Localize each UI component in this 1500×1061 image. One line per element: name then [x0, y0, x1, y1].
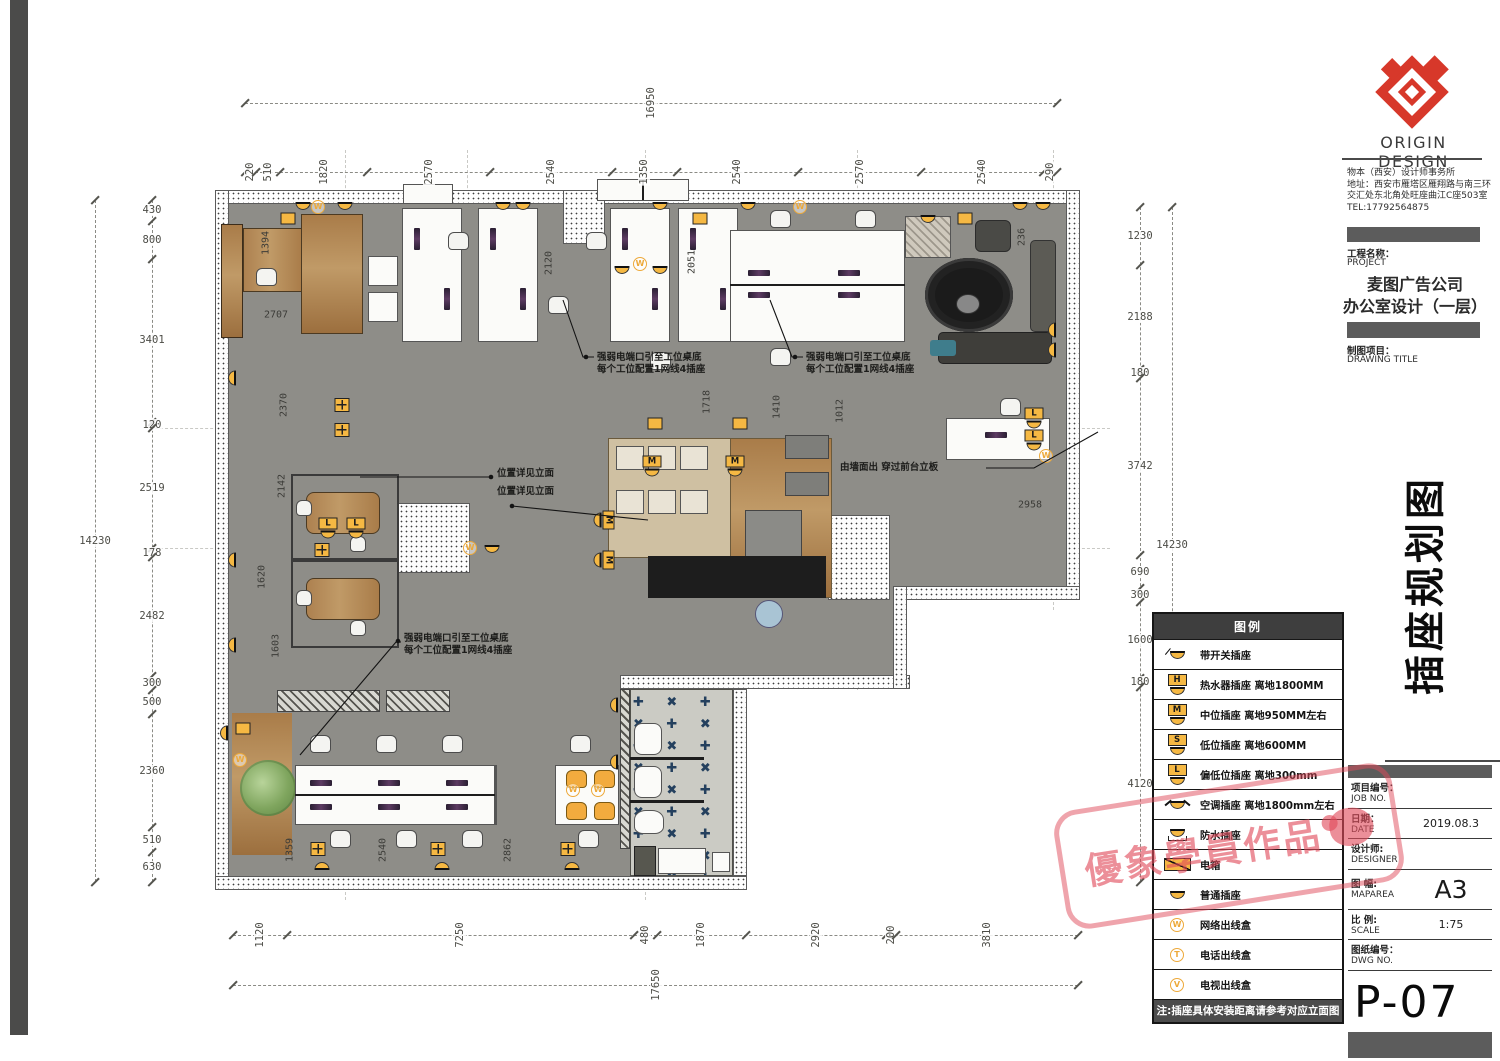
chair	[350, 620, 366, 636]
legend-icon-cell: M	[1154, 704, 1200, 725]
dimension-label: 1120	[254, 921, 266, 948]
interior-dimension-label: 1359	[285, 838, 296, 862]
socket-symbol	[296, 202, 311, 210]
dimension-label: 630	[142, 861, 163, 873]
network-outlet-icon: W	[1039, 449, 1053, 463]
socket-symbol	[335, 423, 350, 437]
socket-symbol: L	[347, 518, 366, 539]
dimension-label: 2540	[976, 158, 988, 185]
wall-restroom-right	[733, 689, 747, 876]
bar-counter-black	[648, 556, 826, 598]
column	[828, 515, 890, 600]
info-row-labels: 比 例:SCALE	[1351, 912, 1413, 938]
socket-icon	[1036, 202, 1051, 210]
info-row-value: 2019.08.3	[1413, 817, 1489, 830]
phone-outlet-icon: T	[1170, 948, 1184, 962]
socket-symbol	[315, 862, 330, 870]
company-info: 物本（西安）设计师事务所地址：西安市雁塔区雁翔路与南三环交汇处东北角处旺座曲江C…	[1347, 168, 1493, 214]
socket-letter-icon: S	[1168, 734, 1187, 755]
annotation-line: 强弱电端口引至工位桌底	[597, 352, 705, 364]
monitor	[652, 288, 658, 310]
junction-box-icon	[281, 213, 296, 226]
cabinet	[634, 846, 656, 876]
legend-icon-cell: S	[1154, 734, 1200, 755]
legend-row: 普通插座	[1154, 879, 1342, 909]
monitor	[690, 228, 696, 250]
legend-icon-cell: W	[1154, 918, 1200, 932]
legend-row: M中位插座 离地950MM左右	[1154, 699, 1342, 729]
legend-icon-cell: L	[1154, 764, 1200, 785]
chair	[296, 500, 312, 516]
interior-dimension-label: 236	[1017, 228, 1028, 246]
socket-symbol: M	[643, 456, 662, 477]
pantry-seat	[616, 446, 644, 470]
network-outlet-icon: W	[566, 783, 580, 797]
annotation-line: 每个工位配置1网线4插座	[806, 364, 914, 376]
legend-icon-cell	[1154, 651, 1200, 659]
chair	[330, 830, 351, 848]
section-bar	[1348, 1032, 1492, 1058]
floor-box-icon	[335, 423, 350, 437]
wall-hatched	[277, 690, 380, 712]
appliance	[785, 435, 829, 459]
socket-letter-icon: L	[1025, 430, 1044, 451]
pantry-seat	[616, 490, 644, 514]
wall-corridor-bottom	[620, 675, 910, 689]
annotation-line: 强弱电端口引至工位桌底	[806, 352, 914, 364]
socket-symbol: M	[594, 511, 615, 530]
chair	[548, 296, 569, 314]
socket-symbol: L	[319, 518, 338, 539]
desk-row	[495, 765, 497, 825]
socket-letter-icon: L	[1025, 408, 1044, 429]
printer	[368, 292, 398, 322]
socket-symbol	[561, 842, 576, 856]
chair	[770, 348, 791, 366]
legend-item-label: 电视出线盒	[1200, 977, 1251, 992]
legend-item-label: 电话出线盒	[1200, 947, 1251, 962]
interior-dimension-label: 1410	[772, 395, 783, 419]
legend-icon-cell	[1154, 801, 1200, 809]
socket-icon	[921, 215, 936, 223]
dimension-label: 480	[639, 925, 651, 946]
legend-item-label: 电箱	[1200, 857, 1220, 872]
legend-row: T电话出线盒	[1154, 939, 1342, 969]
legend-row: L偏低位插座 离地300mm	[1154, 759, 1342, 789]
desk-cluster	[610, 208, 670, 342]
sheet-title-text: 插座规划图	[1393, 475, 1451, 695]
junction-box-icon	[958, 213, 973, 226]
project-name-line1: 麦图广告公司	[1340, 274, 1490, 296]
socket-symbol: W	[591, 783, 605, 797]
floor-box-icon	[561, 842, 576, 856]
legend-item-label: 中位插座 离地950MM左右	[1200, 707, 1327, 722]
project-name-line2: 办公室设计（一层）	[1340, 296, 1490, 318]
info-row-value: A3	[1413, 875, 1489, 904]
socket-symbol	[610, 755, 618, 770]
page-edge-bar	[10, 0, 28, 1035]
monitor	[520, 288, 526, 310]
legend-item-label: 带开关插座	[1200, 647, 1251, 662]
dimension-label: 2570	[423, 158, 435, 185]
interior-dimension-label: 2370	[279, 393, 290, 417]
chair	[462, 830, 483, 848]
legend-row: 空调插座 离地1800mm左右	[1154, 789, 1342, 819]
info-label-en: MAPAREA	[1351, 890, 1413, 902]
sink-counter	[658, 848, 706, 874]
monitor	[378, 780, 400, 786]
socket-icon	[1013, 202, 1028, 210]
floor-box-icon	[315, 543, 330, 557]
sofa	[1030, 240, 1056, 332]
socket-symbol	[228, 371, 236, 386]
socket-symbol: L	[1025, 408, 1044, 429]
socket-symbol	[1048, 343, 1056, 358]
chair	[442, 735, 463, 753]
cabinet	[221, 224, 243, 338]
info-label-cn: 图纸编号：	[1351, 942, 1413, 956]
socket-letter-icon: M	[726, 456, 745, 477]
chair	[448, 232, 469, 250]
switched-socket-icon	[1170, 651, 1185, 659]
desk-divider	[730, 284, 905, 286]
restroom-partition	[630, 800, 704, 803]
dimension-label: 4120	[1126, 778, 1153, 790]
desk-divider	[295, 794, 495, 796]
project-name: 麦图广告公司 办公室设计（一层）	[1340, 274, 1490, 318]
annotation: 位置详见立面	[497, 486, 554, 498]
dimension-label: 500	[142, 696, 163, 708]
socket-symbol: M	[594, 551, 615, 570]
network-outlet-icon: W	[1170, 918, 1184, 932]
socket-symbol	[338, 202, 353, 210]
socket-icon	[496, 202, 511, 210]
company-info-line: TEL:17792564875	[1347, 203, 1493, 215]
info-label-en: JOB NO.	[1351, 794, 1413, 806]
junction-box-icon	[648, 418, 663, 431]
annotation-line: 每个工位配置1网线4插座	[404, 645, 512, 657]
socket-symbol	[228, 553, 236, 568]
drawing-info-block: 项目编号：JOB NO.日期：DATE2019.08.3设计师:DESIGNER…	[1348, 765, 1492, 1058]
socket-icon	[1048, 323, 1056, 338]
monitor	[444, 288, 450, 310]
network-outlet-icon: W	[311, 200, 325, 214]
door	[403, 184, 453, 204]
divider	[1385, 760, 1500, 762]
socket-icon	[315, 862, 330, 870]
legend-item-label: 防水插座	[1200, 827, 1241, 842]
interior-dimension-label: 2958	[1018, 500, 1042, 511]
legend-icon-cell	[1154, 891, 1200, 899]
socket-symbol	[311, 842, 326, 856]
socket-icon	[653, 202, 668, 210]
annotation: 由墙面出 穿过前台立板	[840, 462, 938, 474]
monitor	[720, 288, 726, 310]
annotation-line: 位置详见立面	[497, 486, 554, 498]
monitor	[446, 804, 468, 810]
info-row-labels: 图纸编号：DWG NO.	[1351, 942, 1413, 968]
chair-orange	[566, 802, 587, 820]
desk-cluster	[478, 208, 538, 342]
annotation: 强弱电端口引至工位桌底每个工位配置1网线4插座	[597, 352, 705, 375]
legend: 图例 带开关插座H热水器插座 离地1800MMM中位插座 离地950MM左右S低…	[1152, 612, 1344, 1024]
chair-orange	[594, 802, 615, 820]
wall-main-bottom	[893, 586, 1080, 600]
socket-symbol	[610, 698, 618, 713]
legend-item-label: 低位插座 离地600MM	[1200, 737, 1306, 752]
dimension-label: 510	[262, 162, 274, 183]
socket-symbol	[281, 213, 296, 226]
company-info-line: 物本（西安）设计师事务所	[1347, 168, 1493, 180]
info-row: 项目编号：JOB NO.	[1348, 778, 1492, 809]
floor-box-icon	[311, 842, 326, 856]
socket-symbol	[1036, 202, 1051, 210]
dimension-label: 2540	[545, 158, 557, 185]
dimension-label: 14230	[78, 535, 112, 547]
socket-symbol	[485, 545, 500, 553]
socket-symbol	[1013, 202, 1028, 210]
socket-symbol	[693, 213, 708, 226]
pantry-seat	[680, 446, 708, 470]
dimension-label: 2482	[138, 610, 165, 622]
monitor	[622, 228, 628, 250]
squat-toilet	[634, 723, 662, 755]
origin-design-logo	[1355, 35, 1468, 148]
chair	[310, 735, 331, 753]
socket-icon	[615, 266, 630, 274]
annotation-line: 位置详见立面	[497, 468, 554, 480]
legend-row: 防水插座	[1154, 819, 1342, 849]
socket-letter-icon: L	[347, 518, 366, 539]
dimension-label: 510	[142, 834, 163, 846]
info-row-labels: 项目编号：JOB NO.	[1351, 780, 1413, 806]
socket-icon	[435, 862, 450, 870]
toilet	[634, 810, 664, 834]
meeting-table	[306, 578, 380, 620]
socket-symbol	[431, 842, 446, 856]
brand-name: ORIGIN DESIGN	[1347, 133, 1480, 171]
legend-row: 带开关插座	[1154, 639, 1342, 669]
interior-dimension-label: 1012	[835, 399, 846, 423]
socket-symbol	[220, 726, 228, 741]
socket-symbol: W	[463, 541, 477, 555]
wall-right	[1066, 190, 1080, 600]
junction-box-icon	[733, 418, 748, 431]
dimension-tick	[91, 878, 100, 887]
info-label-en: DWG NO.	[1351, 956, 1413, 968]
socket-symbol	[958, 213, 973, 226]
info-label-cn: 比 例:	[1351, 912, 1413, 926]
info-row-value: 1:75	[1413, 918, 1489, 931]
info-row: 日期：DATE2019.08.3	[1348, 809, 1492, 840]
interior-dimension-label: 1620	[257, 565, 268, 589]
dimension-label: 17650	[650, 968, 662, 1002]
info-row: 比 例:SCALE1:75	[1348, 910, 1492, 941]
throw-blanket	[930, 340, 956, 356]
chair	[855, 210, 876, 228]
network-outlet-icon: W	[591, 783, 605, 797]
restroom-partition	[630, 757, 704, 760]
legend-row: 电箱	[1154, 849, 1342, 879]
socket-letter-icon: H	[1168, 674, 1187, 695]
desk-cluster	[730, 230, 905, 342]
socket-letter-icon: M	[594, 551, 615, 570]
socket-icon	[220, 726, 228, 741]
dimension-label: 2519	[138, 482, 165, 494]
dimension-label: 2570	[854, 158, 866, 185]
section-bar	[1348, 765, 1492, 778]
socket-symbol: M	[726, 456, 745, 477]
interior-dimension-label: 2051	[687, 250, 698, 274]
dimension-line	[152, 200, 153, 882]
chair	[578, 830, 599, 848]
dimension-label: 1230	[1126, 230, 1153, 242]
dimension-tick	[1074, 981, 1083, 990]
company-info-line: 地址：西安市雁塔区雁翔路与南三环	[1347, 180, 1493, 192]
socket-symbol	[1048, 323, 1056, 338]
floor-box-icon	[431, 842, 446, 856]
dimension-label: 3401	[138, 334, 165, 346]
monitor	[378, 804, 400, 810]
project-label-en: PROJECT	[1347, 258, 1386, 270]
reception-desk	[301, 214, 363, 334]
chair	[296, 590, 312, 606]
drawing-title-label-en: DRAWING TITLE	[1347, 355, 1418, 367]
socket-symbol	[435, 862, 450, 870]
chair	[1000, 398, 1021, 416]
network-outlet-icon: W	[793, 200, 807, 214]
legend-row: S低位插座 离地600MM	[1154, 729, 1342, 759]
network-outlet-icon: W	[233, 753, 247, 767]
section-bar	[1347, 227, 1480, 242]
socket-symbol: W	[793, 200, 807, 214]
socket-icon	[296, 202, 311, 210]
monitor	[748, 292, 770, 298]
wall-wing-bottom	[215, 876, 747, 890]
monitor	[490, 228, 496, 250]
sink	[755, 600, 783, 628]
monitor	[985, 432, 1007, 438]
chair	[586, 232, 607, 250]
appliance	[785, 472, 829, 496]
socket-letter-icon: L	[319, 518, 338, 539]
annotation-line: 每个工位配置1网线4插座	[597, 364, 705, 376]
dimension-label: 3742	[1126, 460, 1153, 472]
interior-dimension-label: 2120	[544, 251, 555, 275]
legend-item-label: 网络出线盒	[1200, 917, 1251, 932]
socket-icon	[1170, 891, 1185, 899]
monitor	[414, 228, 420, 250]
chair	[376, 735, 397, 753]
socket-symbol: W	[311, 200, 325, 214]
socket-symbol	[653, 266, 668, 274]
dimension-label: 1600	[1126, 634, 1153, 646]
socket-icon	[610, 755, 618, 770]
chair	[770, 210, 791, 228]
dimension-label: 2360	[138, 765, 165, 777]
legend-item-label: 空调插座 离地1800mm左右	[1200, 797, 1335, 812]
socket-symbol	[648, 418, 663, 431]
annotation: 强弱电端口引至工位桌底每个工位配置1网线4插座	[404, 633, 512, 656]
socket-letter-icon: L	[1168, 764, 1187, 785]
dimension-tick	[1053, 99, 1062, 108]
dimension-label: 14230	[1155, 539, 1189, 551]
legend-icon-cell	[1154, 858, 1200, 871]
socket-icon	[653, 266, 668, 274]
pantry-seat	[648, 490, 676, 514]
chair	[256, 268, 277, 286]
info-label-cn: 项目编号：	[1351, 780, 1413, 794]
legend-row: V电视出线盒	[1154, 969, 1342, 999]
floor-box-icon	[335, 398, 350, 412]
socket-symbol	[496, 202, 511, 210]
info-label-en: DESIGNER	[1351, 855, 1413, 867]
wc	[712, 852, 730, 872]
interior-dimension-label: 1718	[702, 390, 713, 414]
meeting-table	[306, 492, 380, 534]
info-row: 图 幅:MAPAREAA3	[1348, 870, 1492, 910]
annotation: 位置详见立面	[497, 468, 554, 480]
socket-symbol: W	[233, 753, 247, 767]
info-row-labels: 设计师:DESIGNER	[1351, 841, 1413, 867]
interior-dimension-label: 1603	[271, 634, 282, 658]
socket-icon	[338, 202, 353, 210]
socket-icon	[228, 553, 236, 568]
printer	[368, 256, 398, 286]
dimension-label: 3810	[981, 921, 993, 948]
wall-corridor-right	[893, 586, 907, 689]
column	[398, 503, 470, 573]
legend-icon-cell: T	[1154, 948, 1200, 962]
legend-row: H热水器插座 离地1800MM	[1154, 669, 1342, 699]
socket-symbol	[733, 418, 748, 431]
dimension-label: 800	[142, 234, 163, 246]
annotation: 强弱电端口引至工位桌底每个工位配置1网线4插座	[806, 352, 914, 375]
socket-symbol	[921, 215, 936, 223]
plant	[240, 760, 296, 816]
legend-icon-cell	[1154, 829, 1200, 841]
monitor	[310, 804, 332, 810]
desk-cluster	[402, 208, 462, 342]
socket-symbol	[236, 723, 251, 736]
interior-dimension-label: 1394	[261, 231, 272, 255]
socket-symbol	[228, 638, 236, 653]
company-info-line: 交汇处东北角处旺座曲江C座503室	[1347, 191, 1493, 203]
legend-item-label: 普通插座	[1200, 887, 1241, 902]
interior-dimension-label: 2142	[277, 474, 288, 498]
interior-dimension-label: 2540	[378, 838, 389, 862]
dimension-label: 1820	[318, 158, 330, 185]
dimension-tick	[1136, 878, 1145, 887]
info-row: 图纸编号：DWG NO.	[1348, 940, 1492, 971]
dimension-label: 16950	[645, 86, 657, 120]
dimension-label: 690	[1130, 566, 1151, 578]
socket-icon	[516, 202, 531, 210]
socket-icon	[565, 862, 580, 870]
info-label-cn: 设计师:	[1351, 841, 1413, 855]
socket-symbol	[741, 202, 756, 210]
info-label-en: DATE	[1351, 825, 1413, 837]
network-outlet-icon: W	[633, 257, 647, 271]
interior-dimension-label: 2862	[503, 838, 514, 862]
dimension-tick	[1074, 931, 1083, 940]
socket-icon	[610, 698, 618, 713]
sheet-title-vertical: 插座规划图	[1352, 455, 1492, 715]
legend-icon-cell: H	[1154, 674, 1200, 695]
electric-box-icon	[1164, 858, 1191, 871]
socket-symbol	[335, 398, 350, 412]
monitor	[446, 780, 468, 786]
